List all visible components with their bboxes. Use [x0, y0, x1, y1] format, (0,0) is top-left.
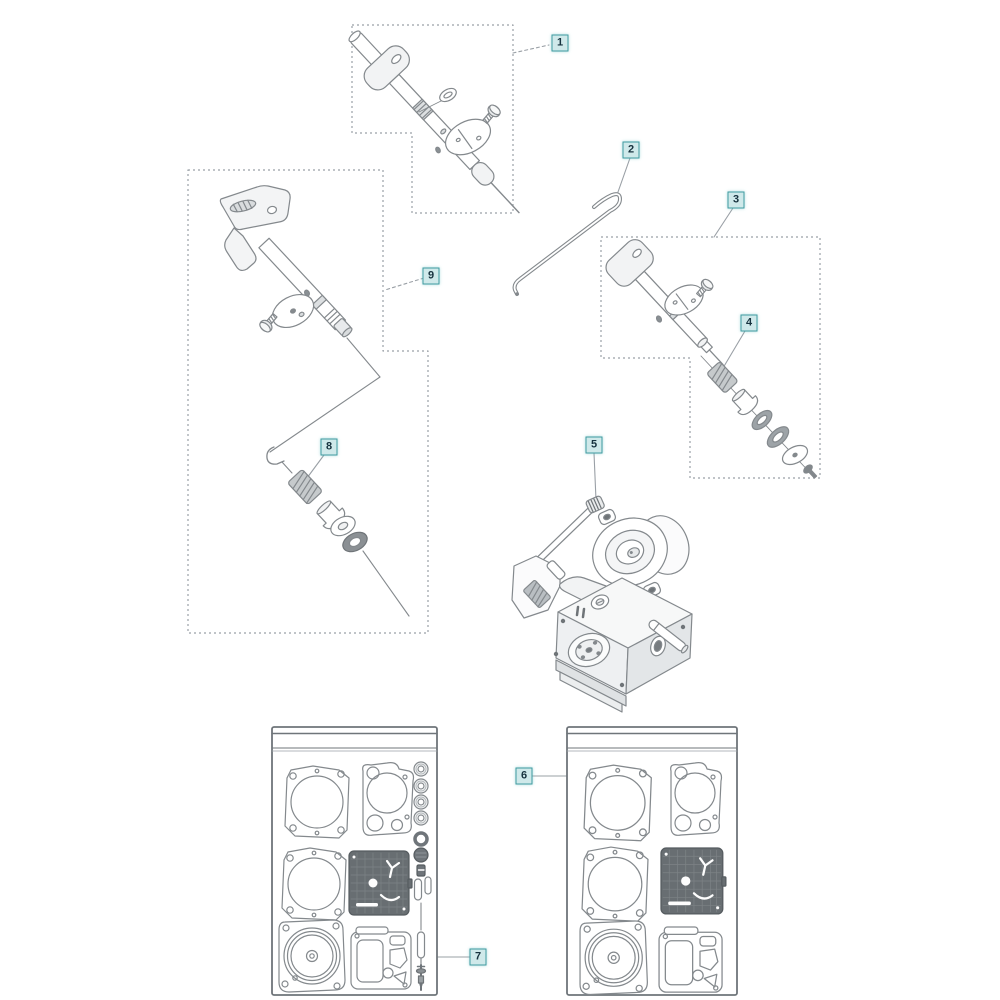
leader-line-1: [513, 45, 549, 53]
group-box-9: [188, 170, 428, 633]
callout-5[interactable]: 5: [586, 437, 603, 454]
carburetor-body-drawing: [512, 495, 697, 712]
callout-7[interactable]: 7: [470, 949, 487, 966]
spring-washer-set-drawing: [701, 356, 819, 480]
gasket-kit-left-drawing: [272, 727, 437, 995]
choke-lever-assembly-drawing: [220, 186, 380, 452]
leader-line-2: [618, 158, 630, 192]
callout-8[interactable]: 8: [321, 439, 338, 456]
needle-spring-set-drawing: [267, 447, 409, 616]
leader-line-3: [714, 208, 733, 237]
callout-3[interactable]: 3: [728, 192, 745, 209]
choke-shaft-assembly-drawing: [602, 236, 741, 380]
throttle-rod-drawing: [515, 194, 620, 296]
leader-line-5: [594, 453, 596, 500]
callout-2[interactable]: 2: [623, 142, 640, 159]
callout-4[interactable]: 4: [741, 315, 758, 332]
leader-line-8: [307, 455, 324, 478]
leader-line-9: [385, 278, 424, 290]
callout-1[interactable]: 1: [552, 35, 569, 52]
diagram-line-art: [0, 0, 1000, 1000]
gasket-kit-right-drawing: [567, 727, 737, 995]
callout-6[interactable]: 6: [516, 768, 533, 785]
parts-diagram-canvas: 1 2 3 4 5 6 7 8 9: [0, 0, 1000, 1000]
throttle-shaft-assembly-drawing: [336, 16, 539, 229]
leader-line-4: [723, 331, 745, 368]
callout-9[interactable]: 9: [423, 268, 440, 285]
